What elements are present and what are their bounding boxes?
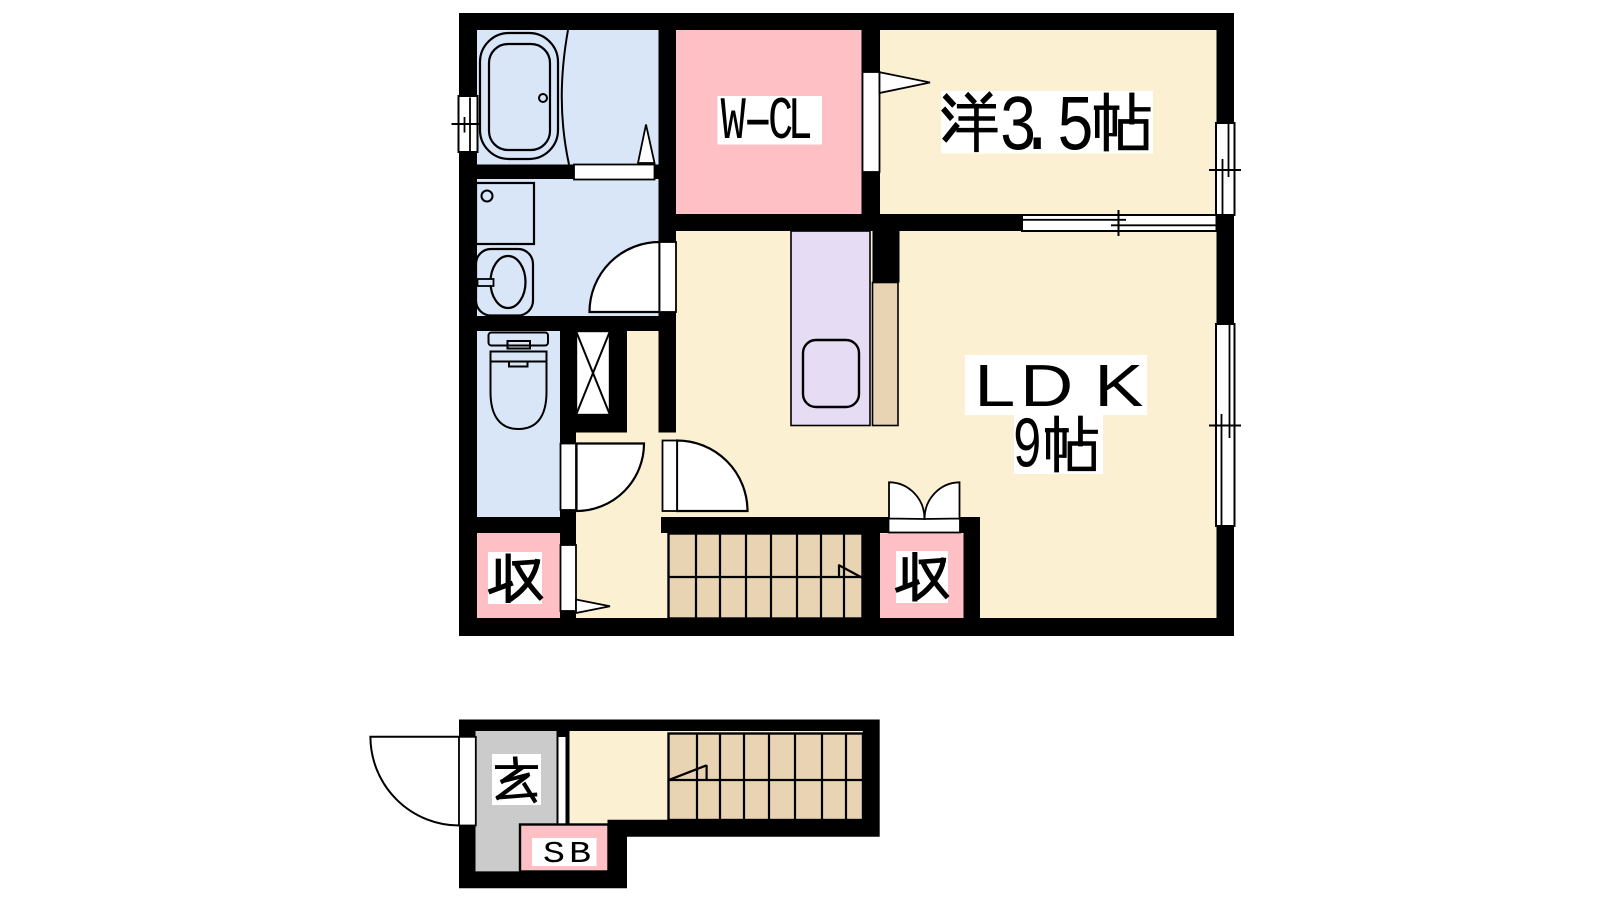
svg-text:S: S — [543, 837, 565, 872]
svg-text:L: L — [788, 88, 813, 156]
svg-text:9: 9 — [1012, 406, 1042, 488]
svg-text:L: L — [974, 354, 1015, 419]
svg-text:5: 5 — [1056, 83, 1094, 173]
svg-text:B: B — [569, 837, 591, 872]
svg-text:.: . — [1018, 83, 1056, 173]
svg-text:K: K — [1094, 354, 1143, 419]
